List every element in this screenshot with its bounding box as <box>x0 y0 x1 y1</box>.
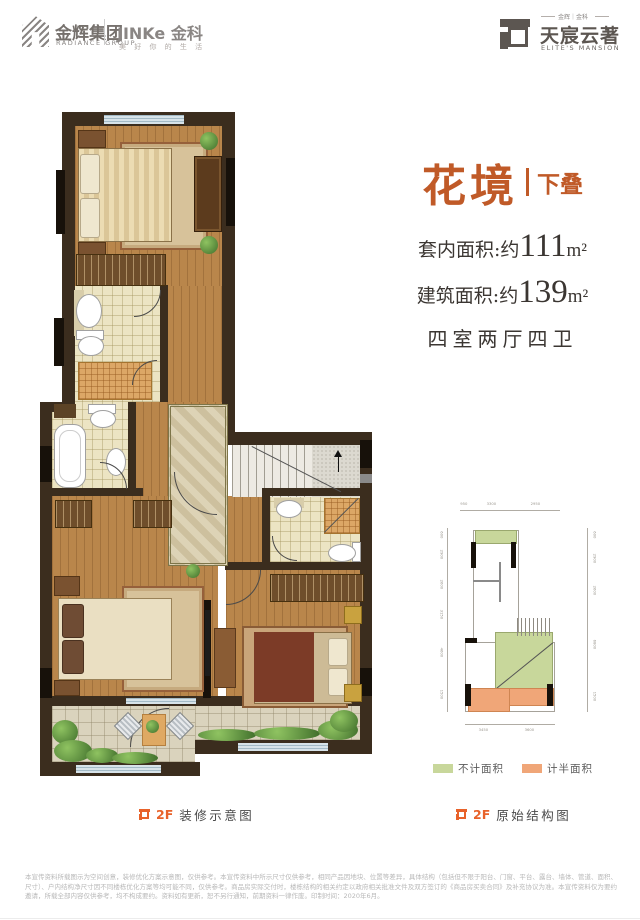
inner-area-label: 套内面积:约 <box>418 235 519 262</box>
dim-line <box>587 528 588 712</box>
wall <box>45 488 143 496</box>
window <box>126 698 196 704</box>
wall <box>226 158 235 226</box>
corridor-mid-floor <box>226 496 262 570</box>
plan-title: 花境 <box>422 150 518 214</box>
dim-label: 2950 <box>531 502 541 507</box>
struct-wall <box>471 542 476 568</box>
wall <box>222 432 372 445</box>
window <box>104 115 184 124</box>
jinke-slogan: 美 好 你 的 生 活 <box>119 42 205 52</box>
caption-right-text: 原始结构图 <box>496 805 571 824</box>
pillow <box>62 604 84 638</box>
wall <box>56 170 65 234</box>
spec-inner-area: 套内面积:约 111 m² <box>385 228 620 265</box>
cabinet <box>54 404 76 418</box>
caption-logo-icon <box>139 809 150 820</box>
sink-icon <box>76 294 102 328</box>
wall <box>262 495 270 570</box>
title-divider <box>526 168 529 196</box>
disclaimer-text: 本宣传资料所载图示为空间创意，装修优化方案示意图，仅供参考。本宣传资料中所示尺寸… <box>25 873 617 902</box>
dim-label: 2600 <box>439 580 444 590</box>
plan-subtitle: 下叠 <box>537 165 583 199</box>
plant-icon <box>200 132 218 150</box>
caption-logo-icon <box>456 809 467 820</box>
caption-left-floor: 2F <box>156 807 173 822</box>
plant-icon <box>186 564 200 578</box>
pillow <box>80 198 100 238</box>
pillow <box>80 154 100 194</box>
bush-icon <box>112 752 158 764</box>
plant-icon <box>146 720 159 733</box>
wardrobe <box>270 574 364 602</box>
nightstand <box>54 680 80 696</box>
toilet-icon <box>90 410 116 428</box>
dim-label: 2600 <box>592 586 597 596</box>
desk <box>214 628 236 688</box>
caption-right: 2F 原始结构图 <box>456 805 571 824</box>
struct-wall <box>499 562 501 602</box>
dim-line <box>447 528 448 712</box>
spec-build-area: 建筑面积:约 139 m² <box>385 274 620 311</box>
poster-page: 金辉集团 RADIANCE GROUP JINKe 金科 美 好 你 的 生 活… <box>0 0 640 920</box>
wall <box>360 440 372 468</box>
nightstand <box>54 576 80 596</box>
bush-icon <box>330 710 358 732</box>
wall <box>40 446 52 482</box>
structural-floor-plan: 950 3300 2950 600 2900 2600 3150 4600 15… <box>425 492 620 747</box>
legend-orange-swatch <box>522 764 542 773</box>
dim-line <box>465 724 555 725</box>
rooms-desc: 四室两厅四卫 <box>385 323 620 352</box>
wardrobe <box>76 254 166 286</box>
jinke-logo: JINKe 金科 <box>117 20 203 44</box>
bush-icon <box>54 740 92 762</box>
footer-rule <box>0 918 640 919</box>
caption-left-text: 装修示意图 <box>179 805 254 824</box>
caption-left: 2F 装修示意图 <box>139 805 254 824</box>
legend: 不计面积 计半面积 <box>433 761 593 776</box>
wall <box>128 402 136 496</box>
header-divider <box>104 19 105 45</box>
dim-label: 3600 <box>525 728 535 733</box>
plant-icon <box>200 236 218 254</box>
pillow <box>328 638 348 666</box>
mansion-rule-left <box>541 16 555 17</box>
up-arrow-icon <box>334 446 342 457</box>
mansion-logo-icon <box>500 19 530 49</box>
wall <box>262 488 372 496</box>
legend-green-swatch <box>433 764 453 773</box>
corridor-upper-floor <box>165 286 222 402</box>
dim-label: 2900 <box>592 554 597 564</box>
dim-label: 950 <box>460 502 467 507</box>
inner-area-value: 111 <box>519 228 566 265</box>
dim-label: 6800 <box>592 640 597 650</box>
struct-wall <box>465 638 477 643</box>
dim-label: 4600 <box>439 648 444 658</box>
legend-green-label: 不计面积 <box>458 761 504 776</box>
blanket <box>254 632 314 702</box>
build-area-unit: m² <box>568 286 588 308</box>
radiance-logo-icon <box>22 16 49 47</box>
mansion-en: ELITE'S MANSION <box>541 44 620 52</box>
struct-wall <box>547 684 553 706</box>
wardrobe <box>55 500 92 528</box>
dim-label: 600 <box>439 531 444 538</box>
caption-right-floor: 2F <box>473 807 490 822</box>
build-area-value: 139 <box>518 274 568 311</box>
wardrobe <box>133 500 172 528</box>
shower-stall <box>324 498 360 534</box>
vent <box>360 474 372 483</box>
decorated-floor-plan <box>38 108 374 798</box>
sink-icon <box>276 500 302 518</box>
toilet-icon <box>78 336 104 356</box>
build-area-label: 建筑面积:约 <box>417 281 518 308</box>
dim-label: 2900 <box>439 550 444 560</box>
dim-label: 3150 <box>439 610 444 620</box>
dim-line <box>460 510 560 511</box>
wall <box>40 668 52 698</box>
mansion-rule-right <box>595 16 609 17</box>
window <box>76 765 161 773</box>
dim-label: 600 <box>592 531 597 538</box>
dim-label: 3300 <box>487 502 497 507</box>
nightstand <box>344 606 362 624</box>
wall <box>160 285 168 402</box>
pillow <box>62 640 84 674</box>
tv-icon <box>205 610 210 676</box>
bathtub-inner <box>59 430 81 482</box>
window <box>238 743 328 751</box>
mansion-sub: 金辉｜金科 <box>558 12 588 21</box>
legend-orange-label: 计半面积 <box>547 761 593 776</box>
toilet-icon <box>328 544 356 562</box>
dresser <box>194 156 222 232</box>
dim-label: 1500 <box>439 690 444 700</box>
dim-label: 3450 <box>479 728 489 733</box>
title-block: 花境 下叠 套内面积:约 111 m² 建筑面积:约 139 m² 四室两厅四卫 <box>385 150 620 352</box>
inner-area-unit: m² <box>566 240 586 262</box>
struct-wall <box>511 542 516 568</box>
struct-stairs <box>517 618 551 636</box>
struct-wall <box>473 580 499 582</box>
wall <box>225 562 360 570</box>
bush-icon <box>198 729 256 741</box>
nightstand <box>78 130 106 148</box>
struct-wall <box>465 684 471 706</box>
dim-label: 1500 <box>592 692 597 702</box>
wall <box>54 318 64 366</box>
half-count-area <box>468 688 510 712</box>
nightstand <box>344 684 362 702</box>
bush-icon <box>254 727 320 740</box>
